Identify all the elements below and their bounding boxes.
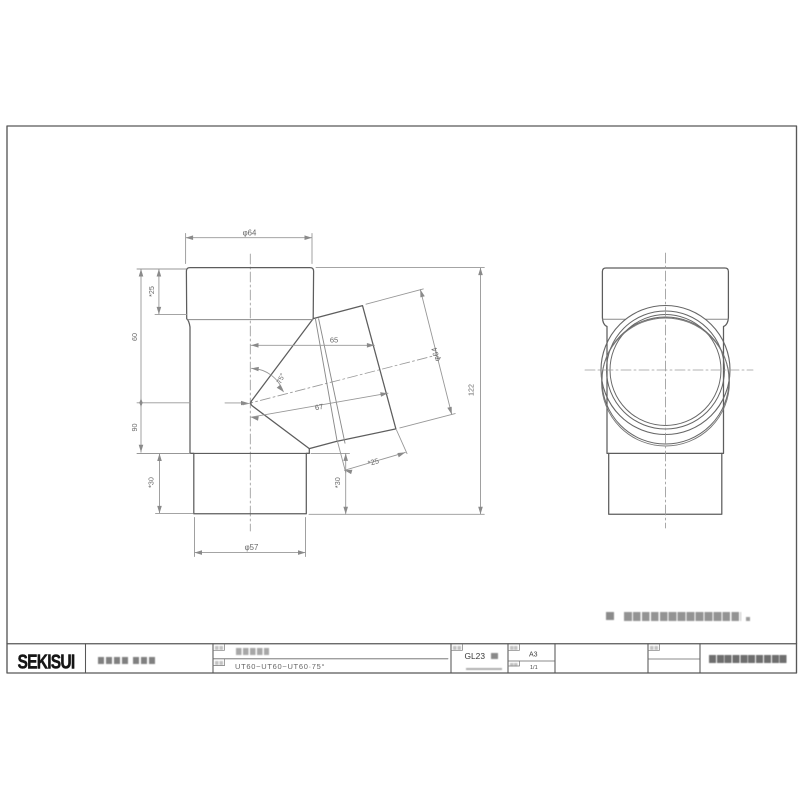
svg-text:1/1: 1/1 (530, 665, 538, 671)
svg-text:75°: 75° (275, 372, 287, 385)
svg-text:*30: *30 (147, 477, 156, 488)
svg-text:*25: *25 (367, 456, 380, 468)
svg-text:A3: A3 (529, 652, 538, 659)
svg-text:65: 65 (330, 336, 338, 345)
svg-text:60: 60 (130, 333, 139, 341)
svg-text:122: 122 (467, 384, 476, 396)
svg-text:φ64: φ64 (243, 229, 257, 238)
svg-text:67: 67 (314, 402, 324, 412)
svg-text:GL23: GL23 (465, 651, 486, 661)
svg-text:*25: *25 (147, 286, 156, 297)
svg-text:90: 90 (130, 424, 139, 432)
svg-text:SEKISUI: SEKISUI (18, 650, 75, 673)
svg-text:φ57: φ57 (245, 543, 259, 552)
svg-text:UT60~UT60~UT60·75°: UT60~UT60~UT60·75° (235, 662, 325, 671)
svg-text:*30: *30 (333, 477, 342, 488)
svg-text:φ64: φ64 (430, 346, 442, 362)
